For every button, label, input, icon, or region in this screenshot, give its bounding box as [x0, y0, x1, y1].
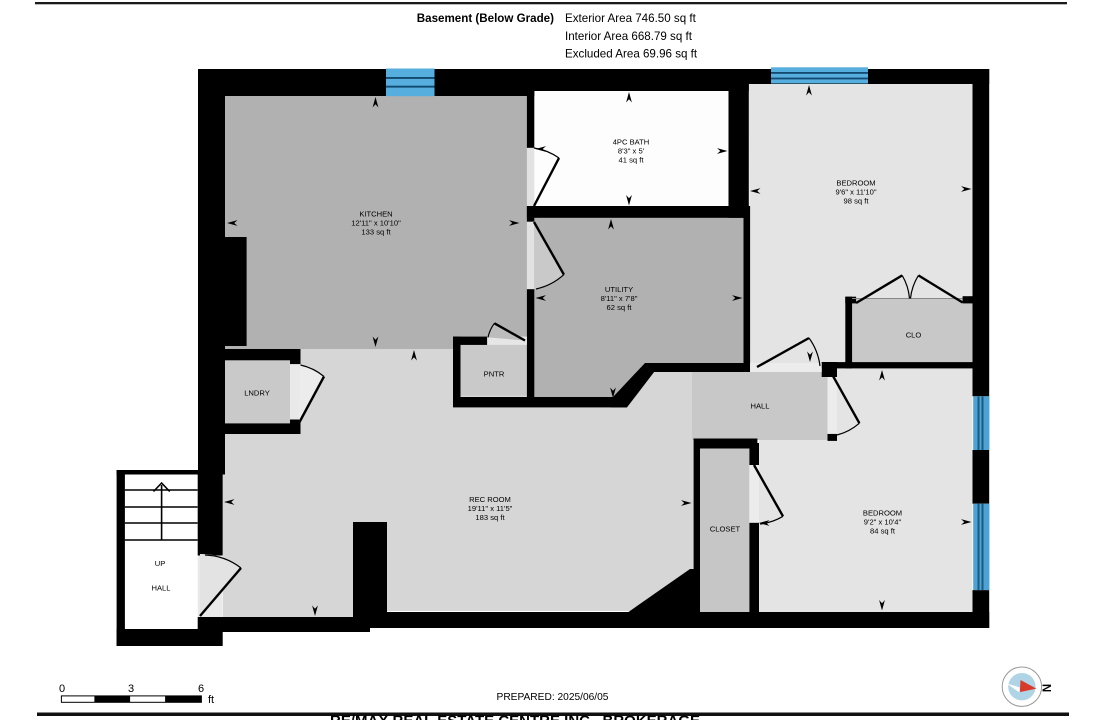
svg-text:Interior Area 668.79 sq ft: Interior Area 668.79 sq ft — [565, 30, 693, 43]
svg-text:CLOSET: CLOSET — [710, 525, 741, 534]
svg-text:4PC BATH: 4PC BATH — [613, 137, 650, 146]
svg-text:8'11" x 7'8": 8'11" x 7'8" — [601, 294, 638, 303]
svg-text:19'11" x 11'5": 19'11" x 11'5" — [468, 504, 513, 513]
svg-text:8'3" x 5': 8'3" x 5' — [618, 147, 645, 156]
svg-text:Basement (Below Grade): Basement (Below Grade) — [417, 12, 554, 25]
svg-text:183 sq ft: 183 sq ft — [475, 513, 505, 522]
svg-text:RE/MAX REAL ESTATE CENTRE INC.: RE/MAX REAL ESTATE CENTRE INC., BROKERAG… — [330, 713, 700, 720]
svg-text:84 sq ft: 84 sq ft — [870, 527, 896, 536]
svg-text:6: 6 — [198, 683, 204, 695]
svg-text:LNDRY: LNDRY — [244, 388, 270, 397]
svg-text:BEDROOM: BEDROOM — [836, 178, 875, 187]
svg-text:HALL: HALL — [751, 402, 770, 411]
svg-text:Exterior Area 746.50 sq ft: Exterior Area 746.50 sq ft — [565, 12, 697, 25]
svg-text:UP: UP — [155, 559, 166, 568]
svg-text:0: 0 — [59, 683, 65, 695]
svg-text:3: 3 — [128, 683, 134, 695]
svg-text:PNTR: PNTR — [484, 370, 505, 379]
svg-text:BEDROOM: BEDROOM — [863, 508, 902, 517]
svg-text:CLO: CLO — [906, 331, 922, 340]
svg-text:98 sq ft: 98 sq ft — [844, 197, 870, 206]
svg-text:ft: ft — [208, 694, 214, 706]
svg-text:HALL: HALL — [152, 584, 171, 593]
svg-text:12'11" x 10'10": 12'11" x 10'10" — [351, 219, 401, 228]
svg-text:9'2" x 10'4": 9'2" x 10'4" — [864, 517, 902, 526]
svg-text:62 sq ft: 62 sq ft — [607, 303, 633, 312]
svg-text:REC ROOM: REC ROOM — [469, 495, 511, 504]
svg-text:UTILITY: UTILITY — [605, 285, 633, 294]
svg-text:Excluded Area 69.96 sq ft: Excluded Area 69.96 sq ft — [565, 48, 698, 61]
svg-text:PREPARED: 2025/06/05: PREPARED: 2025/06/05 — [497, 692, 609, 703]
svg-text:133 sq ft: 133 sq ft — [361, 228, 391, 237]
svg-text:KITCHEN: KITCHEN — [359, 210, 392, 219]
svg-text:N: N — [1040, 684, 1052, 692]
svg-text:9'6" x 11'10": 9'6" x 11'10" — [835, 187, 876, 196]
svg-text:41 sq ft: 41 sq ft — [619, 156, 645, 165]
